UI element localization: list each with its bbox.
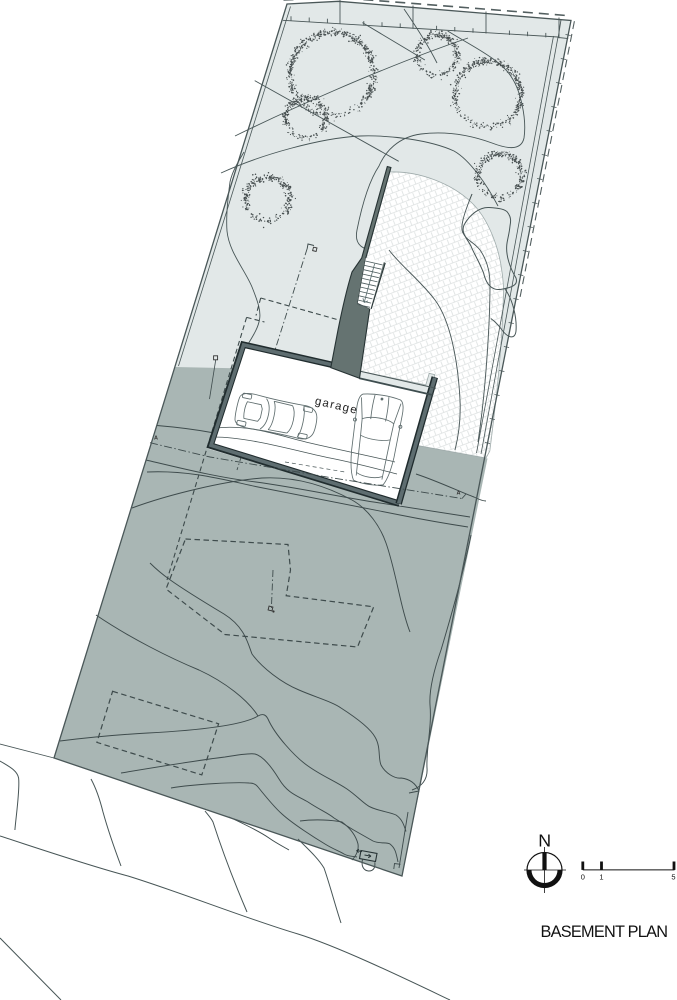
svg-text:0: 0 (581, 873, 585, 882)
svg-text:1: 1 (599, 873, 603, 882)
svg-text:5: 5 (671, 873, 675, 882)
svg-text:A: A (457, 491, 461, 497)
svg-text:BASEMENT PLAN: BASEMENT PLAN (541, 923, 669, 941)
svg-text:A: A (154, 436, 158, 442)
